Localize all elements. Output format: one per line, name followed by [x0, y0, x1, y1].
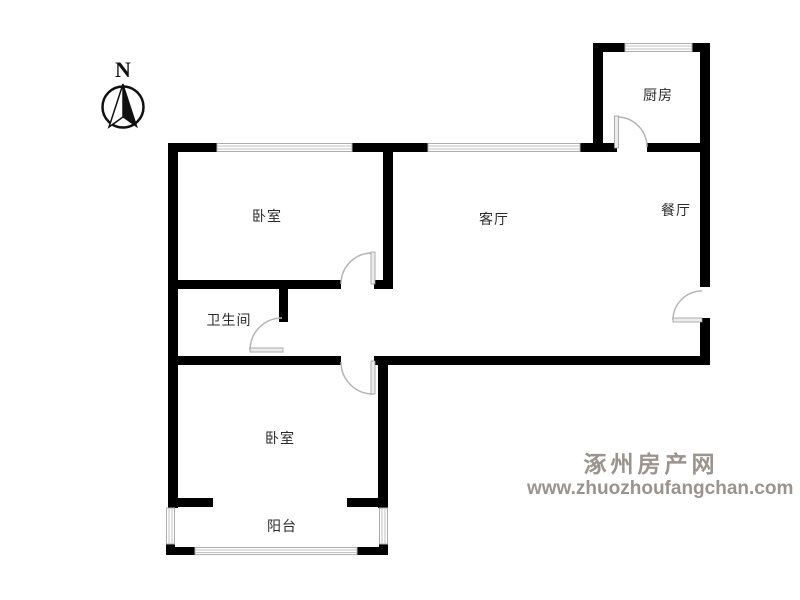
- wall-segment: [168, 280, 341, 289]
- entry-door: [673, 291, 702, 322]
- wall-segment: [357, 547, 388, 555]
- wall-segment: [279, 289, 288, 322]
- window-living: [428, 144, 580, 152]
- room-label-dining: 餐厅: [661, 200, 691, 220]
- room-label-living: 客厅: [479, 209, 509, 229]
- room-label-bathroom: 卫生间: [207, 310, 252, 330]
- wall-segment: [347, 498, 388, 507]
- window-balcony-right: [380, 508, 388, 544]
- window-balcony-front: [195, 548, 357, 555]
- room-label-bedroom-north: 卧室: [252, 206, 282, 226]
- bedroom-north-door: [341, 252, 375, 284]
- window-kitchen: [625, 44, 692, 52]
- window-balcony-left: [167, 508, 175, 544]
- room-label-balcony: 阳台: [267, 516, 297, 536]
- window-bedroom-north: [217, 144, 352, 152]
- floorplan-drawing: [0, 0, 800, 600]
- wall-segment: [580, 143, 617, 152]
- wall-segment: [166, 547, 195, 555]
- kitchen-door: [615, 116, 648, 148]
- watermark-site-name: 涿州房产网: [527, 452, 775, 477]
- bedroom-south-door: [341, 361, 375, 394]
- wall-segment: [168, 356, 341, 365]
- compass-north-label: N: [115, 57, 131, 83]
- compass: [103, 84, 144, 128]
- wall-segment: [647, 143, 710, 152]
- bathroom-door: [250, 318, 283, 352]
- room-label-bedroom-south: 卧室: [265, 428, 295, 448]
- wall-segment: [374, 356, 710, 365]
- doors-layer: [250, 116, 702, 394]
- wall-segment: [168, 498, 213, 507]
- watermark-site-url: www.zhuozhoufangchan.com: [527, 479, 775, 500]
- floorplan-page: N 厨房 餐厅 客厅 卧室 卫生间 卧室 阳台 涿州房产网 www.zhuozh…: [0, 0, 800, 600]
- room-label-kitchen: 厨房: [643, 85, 673, 105]
- wall-segment: [168, 143, 178, 508]
- wall-segment: [593, 43, 603, 152]
- wall-segment: [383, 143, 393, 289]
- watermark: 涿州房产网 www.zhuozhoufangchan.com: [527, 452, 775, 500]
- wall-segment: [378, 356, 388, 508]
- wall-segment: [700, 43, 710, 287]
- wall-segment: [374, 280, 393, 289]
